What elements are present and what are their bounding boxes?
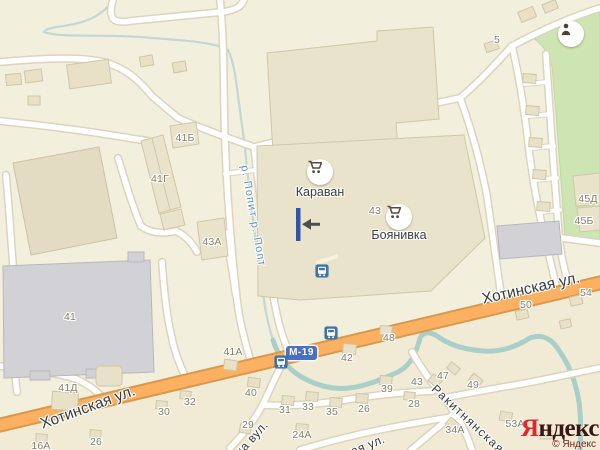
house-number: 41 (64, 311, 76, 323)
house-number: 45Б (574, 215, 593, 227)
poi-karavan-label: Караван (296, 185, 345, 199)
house-number: 43А (202, 236, 221, 248)
house-number: 43 (369, 205, 381, 217)
yandex-logo-ya: Я (521, 415, 539, 442)
house-number: 28 (408, 398, 420, 410)
house-number: 41Г (151, 173, 169, 185)
house-number: 49 (467, 379, 479, 391)
house-number: 5 (494, 34, 500, 46)
house-number: 30 (158, 406, 170, 418)
house-number: 33 (302, 401, 314, 413)
house-number: 41Б (175, 132, 194, 144)
bus-icon (325, 327, 338, 340)
house-number: 32 (184, 396, 196, 408)
map-canvas[interactable]: Хотинская ул.Хотинская ул.Ракитнянскаяка… (0, 0, 600, 450)
bus-icon (275, 356, 288, 369)
yandex-logo-rest: ндекс (538, 415, 599, 442)
house-number: 41Д (58, 382, 77, 394)
house-number: 54 (580, 287, 592, 299)
poi-monument[interactable] (558, 21, 584, 47)
house-number: 35 (326, 406, 338, 418)
poi-karavan[interactable] (307, 159, 333, 185)
house-number: 40 (245, 387, 257, 399)
copyright-notice: © Яндекс (552, 439, 596, 450)
poi-boyanivka[interactable] (386, 204, 412, 230)
bus-stop-marker[interactable] (316, 265, 329, 278)
bus-stop-marker[interactable] (275, 356, 288, 369)
house-number: 26 (358, 403, 370, 415)
bus-icon (316, 265, 329, 278)
house-number: 41А (223, 346, 242, 358)
yandex-logo[interactable]: Яндекс (521, 416, 599, 441)
shopping-cart-icon (386, 204, 402, 220)
shopping-cart-icon (307, 159, 323, 175)
house-number: 16А (31, 440, 50, 450)
house-number: 42 (341, 352, 353, 364)
bus-stop-marker[interactable] (325, 327, 338, 340)
house-number: 50 (520, 299, 532, 311)
monument-icon (558, 21, 574, 37)
house-number: 26 (90, 436, 102, 448)
house-number: 24А (292, 429, 311, 441)
house-number: 43 (411, 376, 423, 388)
house-number: 47 (437, 370, 449, 382)
house-number: 29 (242, 419, 254, 431)
house-number: 48 (383, 332, 395, 344)
house-number: 45Д (578, 193, 597, 205)
route-badge-m19: М-19 (286, 346, 317, 360)
house-number: 34А (445, 424, 464, 436)
house-number: 39 (381, 383, 393, 395)
house-number: 31 (279, 404, 291, 416)
poi-boyanivka-label: Боянивка (371, 228, 426, 242)
